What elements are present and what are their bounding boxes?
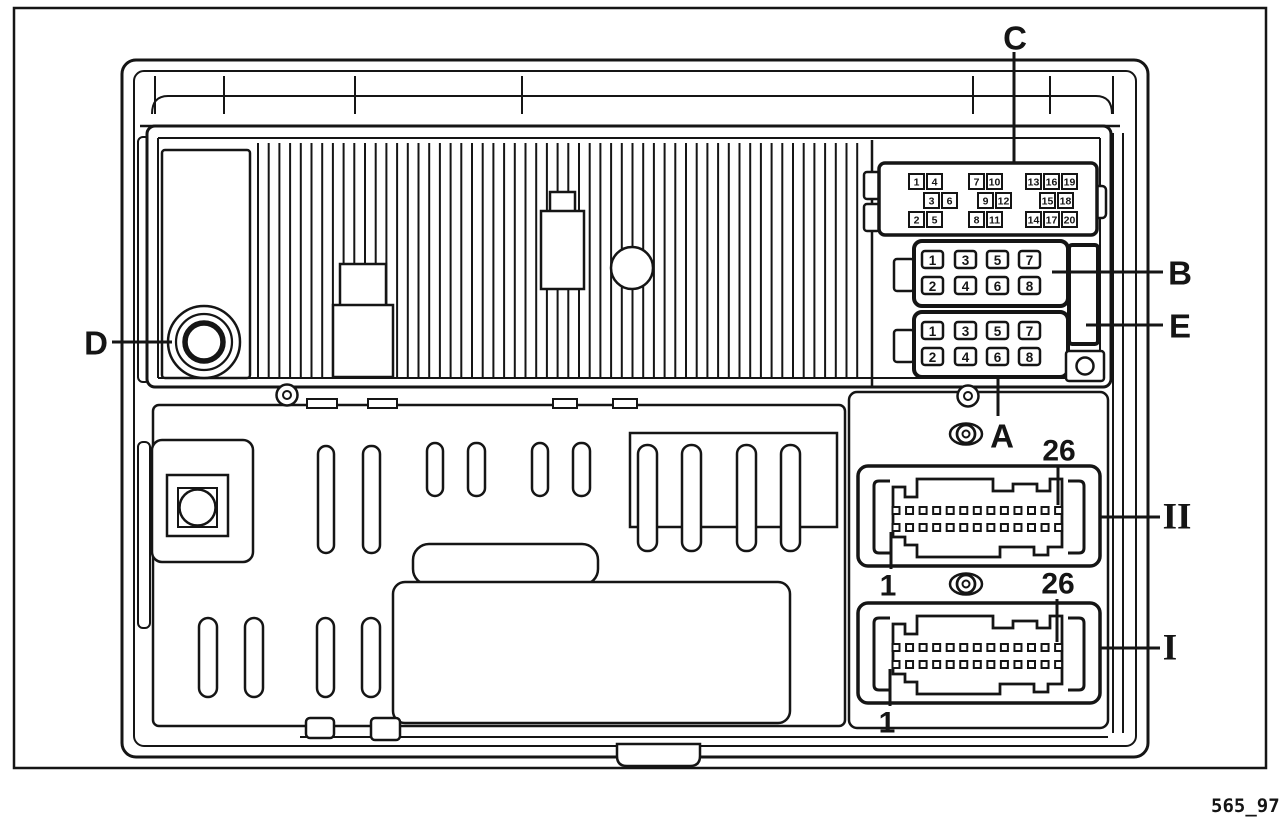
connector-c-block: 1471013161936912151825811141720 bbox=[864, 163, 1106, 235]
fuse-cell-number: 2 bbox=[914, 215, 920, 227]
pin bbox=[1014, 524, 1021, 531]
connector-cell-number: 8 bbox=[1026, 350, 1034, 365]
fuse-cell-number: 16 bbox=[1046, 177, 1058, 189]
pin bbox=[906, 644, 913, 651]
connector-cell-number: 1 bbox=[929, 324, 937, 339]
fuse-cell-number: 14 bbox=[1028, 215, 1040, 227]
pin bbox=[947, 661, 954, 668]
pin bbox=[1001, 661, 1008, 668]
connector-ii-block bbox=[858, 466, 1100, 566]
left-mount-strip bbox=[138, 442, 150, 628]
pin bbox=[960, 661, 967, 668]
bracket-feature bbox=[333, 305, 393, 377]
fuse-cell-number: 11 bbox=[989, 215, 1000, 227]
bottom-tab bbox=[306, 718, 334, 738]
pin bbox=[893, 644, 900, 651]
vent-slot bbox=[532, 443, 548, 496]
vent-slot bbox=[245, 618, 263, 697]
winged-screw-icon bbox=[950, 574, 982, 595]
vent-slot bbox=[573, 443, 590, 496]
vent-slot bbox=[427, 443, 443, 496]
pin bbox=[1055, 507, 1062, 514]
edge-tab bbox=[613, 399, 637, 408]
round-boss bbox=[611, 247, 653, 289]
screw-icon bbox=[958, 386, 979, 407]
pin bbox=[1001, 507, 1008, 514]
pin bbox=[1028, 644, 1035, 651]
latch bbox=[894, 330, 914, 362]
pin bbox=[1042, 644, 1049, 651]
connector-cell-number: 6 bbox=[994, 350, 1002, 365]
pin bbox=[1055, 661, 1062, 668]
winged-screw-icon bbox=[950, 424, 982, 445]
pin bbox=[1014, 644, 1021, 651]
pin bbox=[974, 661, 981, 668]
pin bbox=[920, 507, 927, 514]
connector-cell-number: 1 bbox=[929, 253, 937, 268]
fuse-cell-number: 18 bbox=[1060, 196, 1072, 208]
pin bbox=[906, 661, 913, 668]
connector-i-block bbox=[858, 603, 1100, 703]
pin bbox=[933, 507, 940, 514]
pin bbox=[947, 644, 954, 651]
pin bbox=[933, 661, 940, 668]
pin bbox=[1001, 524, 1008, 531]
vent-slot bbox=[318, 446, 334, 553]
fuse-cell-number: 8 bbox=[974, 215, 980, 227]
stud-feature bbox=[541, 211, 584, 289]
pin bbox=[906, 507, 913, 514]
latch bbox=[894, 259, 914, 291]
connector-cell-number: 7 bbox=[1026, 324, 1034, 339]
edge-tab bbox=[553, 399, 577, 408]
pin bbox=[1028, 507, 1035, 514]
screw-icon bbox=[277, 385, 298, 406]
connector-cell-number: 4 bbox=[962, 350, 970, 365]
square-socket bbox=[152, 440, 253, 562]
pin bbox=[893, 507, 900, 514]
fuse-cell-number: 19 bbox=[1064, 177, 1076, 189]
connector-cell-number: 4 bbox=[962, 279, 970, 294]
vent-slot bbox=[781, 445, 800, 551]
pin bbox=[920, 644, 927, 651]
pin bbox=[1028, 661, 1035, 668]
pin bbox=[933, 524, 940, 531]
connector-cell-number: 5 bbox=[994, 253, 1002, 268]
connector-b-block: 13572468 bbox=[894, 241, 1068, 306]
housing-bump bbox=[393, 582, 790, 723]
connector-cell-number: 8 bbox=[1026, 279, 1034, 294]
pin bbox=[987, 524, 994, 531]
fuse-cell-number: 13 bbox=[1028, 177, 1040, 189]
vent-slot bbox=[362, 618, 380, 697]
pin bbox=[1055, 644, 1062, 651]
edge-tab bbox=[368, 399, 397, 408]
pin bbox=[960, 644, 967, 651]
callout-a: A bbox=[990, 418, 1014, 455]
pin bbox=[1014, 661, 1021, 668]
connector-cell-number: 5 bbox=[994, 324, 1002, 339]
pin bbox=[947, 507, 954, 514]
pin bbox=[960, 524, 967, 531]
bottom-tab bbox=[617, 744, 700, 766]
pin bbox=[974, 507, 981, 514]
vent-slot bbox=[682, 445, 701, 551]
fuse-cell-number: 12 bbox=[998, 196, 1010, 208]
callout-i: I bbox=[1163, 628, 1177, 669]
callout-c: C bbox=[1003, 20, 1027, 57]
radio-rear-connector-diagram: 1471013161936912151825811141720 13572468… bbox=[0, 0, 1280, 832]
pin bbox=[1028, 524, 1035, 531]
connector-cell-number: 3 bbox=[962, 253, 970, 268]
fuse-cell-number: 10 bbox=[989, 177, 1001, 189]
pin bbox=[933, 644, 940, 651]
connector-e-block bbox=[1069, 245, 1098, 344]
bottom-tab bbox=[371, 718, 400, 740]
pin bbox=[960, 507, 967, 514]
bottom-panel bbox=[152, 399, 845, 726]
connector-a-block: 13572468 bbox=[894, 312, 1068, 377]
fuse-cell-number: 3 bbox=[929, 196, 935, 208]
fuse-cell-number: 5 bbox=[932, 215, 938, 227]
aerial-socket bbox=[168, 306, 240, 378]
fuse-cell-number: 17 bbox=[1046, 215, 1058, 227]
connector-cell-number: 2 bbox=[929, 279, 937, 294]
pin bbox=[893, 661, 900, 668]
pin-label-ii-1: 1 bbox=[880, 570, 897, 603]
fuse-cell-number: 1 bbox=[914, 177, 920, 189]
pin bbox=[987, 644, 994, 651]
pin bbox=[1042, 661, 1049, 668]
pin bbox=[1042, 524, 1049, 531]
pin bbox=[1042, 507, 1049, 514]
housing-bump-top bbox=[413, 544, 598, 585]
pin bbox=[947, 524, 954, 531]
connector-cell-number: 6 bbox=[994, 279, 1002, 294]
screw-plate bbox=[1066, 351, 1104, 381]
fuse-cell-number: 15 bbox=[1042, 196, 1054, 208]
fuse-cell-number: 20 bbox=[1064, 215, 1076, 227]
pin bbox=[893, 524, 900, 531]
vent-slot bbox=[468, 443, 485, 496]
fuse-cell-number: 4 bbox=[932, 177, 938, 189]
fuse-cell-number: 7 bbox=[974, 177, 980, 189]
pin bbox=[920, 661, 927, 668]
edge-tab bbox=[307, 399, 337, 408]
vent-slot bbox=[317, 618, 334, 697]
screw-hole-icon bbox=[1077, 358, 1094, 375]
callout-d: D bbox=[84, 325, 108, 362]
pin bbox=[1055, 524, 1062, 531]
callout-b: B bbox=[1168, 255, 1192, 292]
pin bbox=[920, 524, 927, 531]
pin bbox=[1014, 507, 1021, 514]
figure-code: 565_97 bbox=[1211, 795, 1280, 817]
vent-slot bbox=[199, 618, 217, 697]
pin bbox=[987, 661, 994, 668]
pin bbox=[974, 524, 981, 531]
vent-slot bbox=[638, 445, 657, 551]
bracket-feature bbox=[340, 264, 386, 307]
pin-label-i-1: 1 bbox=[879, 707, 896, 740]
connector-cell-number: 7 bbox=[1026, 253, 1034, 268]
pin bbox=[906, 524, 913, 531]
pin-label-ii-26: 26 bbox=[1042, 435, 1075, 468]
callout-ii: II bbox=[1163, 497, 1192, 538]
connector-cell-number: 3 bbox=[962, 324, 970, 339]
fuse-cell-number: 6 bbox=[947, 196, 953, 208]
pin bbox=[987, 507, 994, 514]
vent-slot bbox=[737, 445, 756, 551]
pin-label-i-26: 26 bbox=[1041, 568, 1074, 601]
pin bbox=[974, 644, 981, 651]
vent-slot bbox=[363, 446, 380, 553]
fuse-cell-number: 9 bbox=[983, 196, 989, 208]
connector-cell-number: 2 bbox=[929, 350, 937, 365]
pin bbox=[1001, 644, 1008, 651]
callout-e: E bbox=[1169, 308, 1191, 345]
